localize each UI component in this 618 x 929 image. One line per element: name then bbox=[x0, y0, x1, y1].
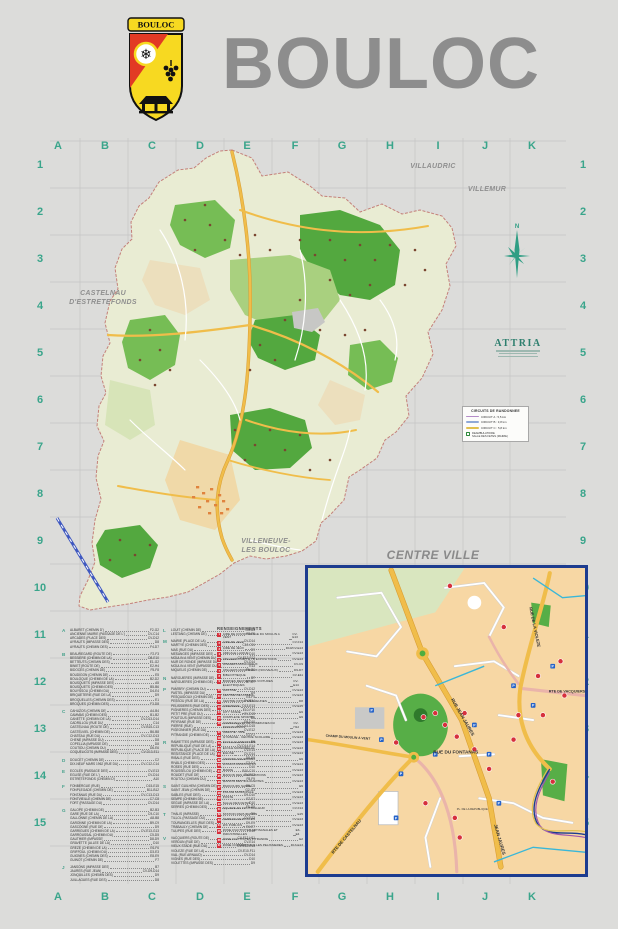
poi-row: 26MAISON DES SOLIDARITESCV-E13 bbox=[217, 780, 303, 784]
poi-marker bbox=[501, 624, 506, 629]
index-group: DDOUCET (CHEMIN DE)C2DIX-NEUF MARS 1962 … bbox=[62, 758, 159, 766]
grid-number: 4 bbox=[580, 300, 586, 312]
poi-number-badge: 19 bbox=[217, 741, 221, 745]
poi-row: 12CENTRE INITIATIVES JEUNESD8 bbox=[217, 700, 303, 704]
centre-ville-inset: PPPPPPPPPPP RUE JEAN JAURES JEAN JAURES … bbox=[305, 565, 588, 877]
index-group: CCAHUZOS (CHEMIN DE)A4-B4CAMMAS (CHEMIN … bbox=[62, 709, 159, 755]
street-index-row: AYRAUTS (CHEMIN DES)F4-D7 bbox=[70, 645, 159, 649]
label-villeneuve-2: LES BOULOC bbox=[242, 547, 291, 554]
poi-marker bbox=[511, 737, 516, 742]
legend-extra-line2: SALLE DES FETES (MAIRIE) bbox=[472, 435, 508, 438]
crest: BOULOC ❄ bbox=[106, 16, 206, 130]
grid-number: 8 bbox=[580, 488, 586, 500]
poi-marker bbox=[535, 673, 540, 678]
poi-number-badge: 13 bbox=[217, 705, 221, 709]
poi-number-badge: 25 bbox=[217, 774, 221, 778]
poi-marker bbox=[454, 734, 459, 739]
grid-number: 9 bbox=[37, 535, 43, 547]
grid-letter: A bbox=[54, 891, 62, 903]
index-group: GGALOPE (CHEMIN DE)B2-B3GARE (RUE DE LA)… bbox=[62, 808, 159, 862]
grid-letter: F bbox=[292, 891, 299, 903]
street-index-row: GUINOT (CHEMIN DE)F7 bbox=[70, 858, 159, 862]
poi-number-badge: 20 bbox=[217, 747, 221, 751]
circuit-label: CIRCUIT B : 3,8 km bbox=[481, 420, 507, 424]
poi-number-badge: 24 bbox=[217, 769, 221, 773]
poi-marker bbox=[550, 779, 555, 784]
parking-icon: P bbox=[550, 664, 555, 669]
poi-row: 28POLICE MUNICIPALECV-E13 bbox=[217, 791, 303, 795]
poi-number-badge: 35 bbox=[217, 829, 221, 833]
poi-number-badge: 32 bbox=[217, 813, 221, 817]
poi-row: 10CANTINECV-E13 bbox=[217, 689, 303, 693]
grid-number: 3 bbox=[580, 253, 586, 265]
street-index-row: FORT (PASSAGE DU)CV-D14 bbox=[70, 801, 159, 805]
street-index-row: VIOLETTES (IMPASSE DES)D9 bbox=[171, 861, 255, 865]
street-index-row: COQUELICOTS (IMPASSE DES)CV-D13-E11 bbox=[70, 750, 159, 754]
parking-icon: P bbox=[531, 703, 536, 708]
grid-letter: G bbox=[338, 140, 347, 152]
poi-row: 19ECOLE ELEMENTAIRECV-E13 bbox=[217, 741, 303, 745]
label-villaudric: VILLAUDRIC bbox=[410, 163, 455, 170]
index-group: BBEAUREGARD (ROUTE DE)F2-F3BESSIERE (CHE… bbox=[62, 652, 159, 706]
parking-icon: P bbox=[394, 816, 399, 821]
index-group-letter: N bbox=[163, 676, 166, 681]
attria-tagline-line bbox=[499, 353, 536, 355]
poi-row: 22JARDINS SOLIDAIRESE9 bbox=[217, 758, 303, 762]
inset-map: PPPPPPPPPPP RUE JEAN JAURES JEAN JAURES … bbox=[308, 568, 585, 874]
label-villemur: VILLEMUR bbox=[468, 186, 506, 193]
poi-row: 37ZONE COMMERCIALE LES PELISSIERESD13-E1… bbox=[217, 844, 303, 848]
grid-number: 9 bbox=[580, 535, 586, 547]
street-index-col1: AALBARET (CHEMIN D')F2-G2ANCIENNE MAIRIE… bbox=[62, 628, 159, 885]
poi-row: 5ATELIERS D'ART ET D'EXPOSITIONSCV-E13 bbox=[217, 658, 303, 662]
index-group: EECOLES (PASSAGE DES)CV-E13EGLISE (RUE D… bbox=[62, 769, 159, 781]
parking-icon: P bbox=[511, 683, 516, 688]
poi-marker bbox=[457, 835, 462, 840]
poi-row: 23LOCAUX ASSOCIATIFSCV-E14 bbox=[217, 763, 303, 767]
index-group-letter: G bbox=[62, 808, 66, 813]
grid-number: 7 bbox=[37, 441, 43, 453]
poi-number-badge: 14 bbox=[217, 711, 221, 715]
poi-row: 31SQUARE DU FOOTBALLEURCV-F14 bbox=[217, 807, 303, 811]
hiking-legend: CIRCUITS DE RANDONNEE CIRCUIT A : 5,5 km… bbox=[462, 406, 529, 442]
grid-letter: J bbox=[482, 140, 488, 152]
poi-row: 35ZONE D'ACTIVITES ARTISANALES ET INDUST… bbox=[217, 829, 303, 837]
poi-number-badge: 3 bbox=[217, 647, 221, 651]
circuit-label: CIRCUIT A : 5,5 km bbox=[481, 415, 506, 419]
poi-row: 11CENTRE DE LOISIRSCV-E13 bbox=[217, 694, 303, 698]
poi-row: 3AIRE DE JEUXD10/CV-E13 bbox=[217, 647, 303, 651]
poi-number-badge: 1 bbox=[217, 633, 221, 637]
grid-letter: F bbox=[292, 140, 299, 152]
poi-number-badge: 33 bbox=[217, 818, 221, 822]
poi-row: 24MAIRIECV-E13 bbox=[217, 769, 303, 773]
street-index-row: DIX-NEUF MARS 1962 (RUE DU)CV-C12-C14 bbox=[70, 762, 159, 766]
grid-letter: G bbox=[338, 891, 347, 903]
poi-row: 29POSTECV-E13 bbox=[217, 796, 303, 800]
poi-number-badge: 22 bbox=[217, 758, 221, 762]
grid-number: 14 bbox=[34, 770, 46, 782]
grid-letter: D bbox=[196, 140, 204, 152]
grid-number: 10 bbox=[34, 582, 46, 594]
parking-icon: P bbox=[379, 737, 384, 742]
grid-number: 2 bbox=[37, 206, 43, 218]
grid-number: 1 bbox=[580, 159, 586, 171]
attria-tagline-line bbox=[498, 356, 539, 358]
parking-icon: P bbox=[399, 772, 404, 777]
index-group-letter: L bbox=[163, 628, 166, 633]
grid-number: 2 bbox=[580, 206, 586, 218]
poi-marker bbox=[442, 722, 447, 727]
poi-number-badge: 23 bbox=[217, 763, 221, 767]
poi-marker bbox=[423, 801, 428, 806]
grid-letter: E bbox=[243, 140, 250, 152]
poi-row: 14CITY STADEE9 bbox=[217, 711, 303, 715]
attria-logo: ATTRIA bbox=[486, 338, 550, 358]
grid-letter: I bbox=[436, 140, 439, 152]
grid-number: 5 bbox=[580, 347, 586, 359]
legend-extra: DEAMBULATOIRE SALLE DES FETES (MAIRIE) bbox=[466, 432, 525, 439]
grid-letter: K bbox=[528, 140, 536, 152]
street-label: RTE DE VACQUIERS bbox=[549, 690, 585, 694]
parking-icon: P bbox=[487, 752, 492, 757]
grid-number: 15 bbox=[34, 817, 46, 829]
poi-marker bbox=[421, 715, 426, 720]
grid-number: 11 bbox=[34, 629, 46, 641]
attria-tagline-line bbox=[496, 350, 541, 352]
inset-plaza bbox=[468, 596, 482, 610]
street-index-row: ESTRETEFONDS (CHEMIN D')A10 bbox=[70, 777, 159, 781]
poi-row: 36ZONE D'ACTIVITES PITRANDIEE2 bbox=[217, 838, 303, 842]
poster: N BOULOC ❄ BOULOC AABBCCDDEEFFGGHHIIJJKK… bbox=[0, 0, 618, 929]
compass-rose: N bbox=[504, 224, 530, 278]
poi-row: 21EGLISECV-E14 bbox=[217, 752, 303, 756]
street-label: RUE DU FONTANAS bbox=[433, 749, 478, 754]
poi-number-badge: 37 bbox=[217, 844, 221, 848]
poi-row: 34WC PUBLICSCV-E13 bbox=[217, 824, 303, 828]
poi-number-badge: 30 bbox=[217, 802, 221, 806]
grid-letter: C bbox=[148, 891, 156, 903]
poi-number-badge: 11 bbox=[217, 694, 221, 698]
parking-icon: P bbox=[497, 801, 502, 806]
poi-row: 1AIRE DE COVOITURAGE DU MOULIN A VENTCV-… bbox=[217, 633, 303, 641]
circuit-swatch bbox=[466, 427, 479, 429]
grid-letter: K bbox=[528, 891, 536, 903]
page-title: BOULOC bbox=[222, 28, 502, 100]
poi-number-badge: 16 bbox=[217, 722, 221, 726]
poi-row: 18GYMNASE - CENTRE SCOLAIRECV-E13 bbox=[217, 736, 303, 740]
poi-number-badge: 21 bbox=[217, 752, 221, 756]
grid-number: 3 bbox=[37, 253, 43, 265]
grid-number: 6 bbox=[37, 394, 43, 406]
grid-number: 8 bbox=[37, 488, 43, 500]
index-group-letter: T bbox=[163, 812, 166, 817]
poi-row: 16COMMUNAUTE DE COMMUNES DU FRONTONNAISC… bbox=[217, 722, 303, 730]
poi-row: 17CRECHE - RPECV-E13 bbox=[217, 731, 303, 735]
poi-number-badge: 4 bbox=[217, 652, 221, 656]
grid-number: 7 bbox=[580, 441, 586, 453]
index-group-letter: J bbox=[62, 865, 65, 870]
poi-marker bbox=[558, 659, 563, 664]
poi-marker bbox=[452, 815, 457, 820]
market-hall-icon bbox=[139, 96, 173, 113]
index-group-letter: A bbox=[62, 628, 65, 633]
parking-icon: P bbox=[369, 708, 374, 713]
poi-marker bbox=[540, 713, 545, 718]
poi-row: 13CIMETIERECV-E15 bbox=[217, 705, 303, 709]
index-group-letter: B bbox=[62, 652, 65, 657]
poi-row: 20ECOLE MATERNELLECV-E13 bbox=[217, 747, 303, 751]
grid-letter: B bbox=[101, 140, 109, 152]
grid-number: 13 bbox=[34, 723, 46, 735]
circuit-label: CIRCUIT C : 5,8 km bbox=[481, 426, 507, 430]
grid-letter: A bbox=[54, 140, 62, 152]
grid-letter: B bbox=[101, 891, 109, 903]
poi-marker bbox=[394, 740, 399, 745]
poi-number-badge: 9 bbox=[217, 680, 221, 684]
street-index-row: BROQUES (CHEMIN DES)F3-D8 bbox=[70, 702, 159, 706]
poi-row: 9BORNES RECHARGES VOITURES ELECTRIQUESCV… bbox=[217, 680, 303, 688]
snowflake-icon: ❄ bbox=[140, 46, 152, 62]
inset-park bbox=[393, 694, 448, 757]
poi-number-badge: 36 bbox=[217, 838, 221, 842]
label-castelnau-2: D'ESTRETEFONDS bbox=[69, 299, 137, 306]
street-label: PL. DE LA REPUBLIQUE bbox=[457, 807, 488, 811]
index-group-letter: E bbox=[62, 769, 65, 774]
label-castelnau-1: CASTELNAU bbox=[80, 290, 126, 297]
grid-letter: E bbox=[243, 891, 250, 903]
poi-row: 27PARCOURS SANTEE9 bbox=[217, 785, 303, 789]
poi-row: 32STATION D'EPURATIONE15 bbox=[217, 813, 303, 817]
label-villeneuve-1: VILLENEUVE- bbox=[241, 538, 291, 545]
poi-marker bbox=[562, 693, 567, 698]
poi-row: 4AMICALE LAIQUECV-E13 bbox=[217, 652, 303, 656]
index-group-letter: F bbox=[62, 784, 65, 789]
grid-number: 5 bbox=[37, 347, 43, 359]
poi-number-badge: 5 bbox=[217, 658, 221, 662]
poi-number-badge: 31 bbox=[217, 807, 221, 811]
poi-number-badge: 26 bbox=[217, 780, 221, 784]
index-group-letter: M bbox=[163, 639, 167, 644]
grid-letter: I bbox=[436, 891, 439, 903]
poi-number-badge: 18 bbox=[217, 736, 221, 740]
poi-marker bbox=[516, 713, 521, 718]
crest-banner-text: BOULOC bbox=[138, 20, 175, 30]
poi-row: 8BIBLIOTHEQUECV-E11 bbox=[217, 674, 303, 678]
grid-letter: H bbox=[386, 891, 394, 903]
grid-letter: C bbox=[148, 140, 156, 152]
poi-index: RENSEIGNEMENTS 1AIRE DE COVOITURAGE DU M… bbox=[217, 626, 303, 849]
legend-item: CIRCUIT A : 5,5 km bbox=[466, 415, 525, 419]
parking-icon: P bbox=[472, 723, 477, 728]
poi-row: 25MAISON DES ASSOCIATIONSCV-E13 bbox=[217, 774, 303, 778]
grid-letter: J bbox=[482, 891, 488, 903]
poi-number-badge: 17 bbox=[217, 731, 221, 735]
poi-number-badge: 12 bbox=[217, 700, 221, 704]
poi-number-badge: 28 bbox=[217, 791, 221, 795]
poi-row: 15COMPLEXE SPORTIFE9 bbox=[217, 716, 303, 720]
poi-number-badge: 7 bbox=[217, 669, 221, 673]
poi-index-title: RENSEIGNEMENTS bbox=[217, 626, 303, 631]
poi-row: 30SALLE DES FETESCV-E13 bbox=[217, 802, 303, 806]
index-group-letter: D bbox=[62, 758, 65, 763]
poi-number-badge: 2 bbox=[217, 641, 221, 645]
index-group-letter: V bbox=[163, 836, 166, 841]
inset-title: CENTRE VILLE bbox=[387, 548, 480, 562]
poi-marker bbox=[487, 766, 492, 771]
poi-row: 33TERRAIN DE BOULESCV-E13 bbox=[217, 818, 303, 822]
street-index-row: JUILLAGUES (RUE DES)D8 bbox=[70, 878, 159, 882]
index-group-letter: R bbox=[163, 740, 166, 745]
grid-number: 6 bbox=[580, 394, 586, 406]
poi-number-badge: 29 bbox=[217, 796, 221, 800]
index-group: AALBARET (CHEMIN D')F2-G2ANCIENNE MAIRIE… bbox=[62, 628, 159, 649]
index-group-letter: P bbox=[163, 687, 166, 692]
poi-number-badge: 6 bbox=[217, 663, 221, 667]
index-group-letter: S bbox=[163, 784, 166, 789]
legend-item: CIRCUIT B : 3,8 km bbox=[466, 420, 525, 424]
grid-letter: D bbox=[196, 891, 204, 903]
circuit-swatch bbox=[466, 416, 479, 418]
poi-number-badge: 10 bbox=[217, 689, 221, 693]
legend-item: CIRCUIT C : 5,8 km bbox=[466, 426, 525, 430]
index-group: FFONBERGUE (RUE)D15-E15FONPLEGADE (CHEMI… bbox=[62, 784, 159, 805]
grid-number: 12 bbox=[34, 676, 46, 688]
poi-row: 7ATELIERS MUNICIPAUX (NOUVEAUX)D9-D7 bbox=[217, 669, 303, 673]
index-group: JJANSONS (IMPASSE DES)B7JAURES (RUE JEAN… bbox=[62, 865, 159, 882]
poi-number-badge: 27 bbox=[217, 785, 221, 789]
poi-row: 6ATELIERS MUNICIPAUXCV-C9 bbox=[217, 663, 303, 667]
grid-letter: H bbox=[386, 140, 394, 152]
grid-number: 1 bbox=[37, 159, 43, 171]
poi-number-badge: 34 bbox=[217, 824, 221, 828]
index-group-letter: C bbox=[62, 709, 65, 714]
legend-title: CIRCUITS DE RANDONNEE bbox=[466, 409, 525, 413]
attria-name: ATTRIA bbox=[486, 338, 550, 349]
circuit-swatch bbox=[466, 421, 479, 423]
grid-number: 4 bbox=[37, 300, 43, 312]
poi-marker bbox=[433, 711, 438, 716]
poi-number-badge: 15 bbox=[217, 716, 221, 720]
poi-marker bbox=[447, 583, 452, 588]
deambulatoire-icon bbox=[466, 432, 470, 436]
compass-n-label: N bbox=[515, 224, 519, 230]
poi-number-badge: 8 bbox=[217, 674, 221, 678]
